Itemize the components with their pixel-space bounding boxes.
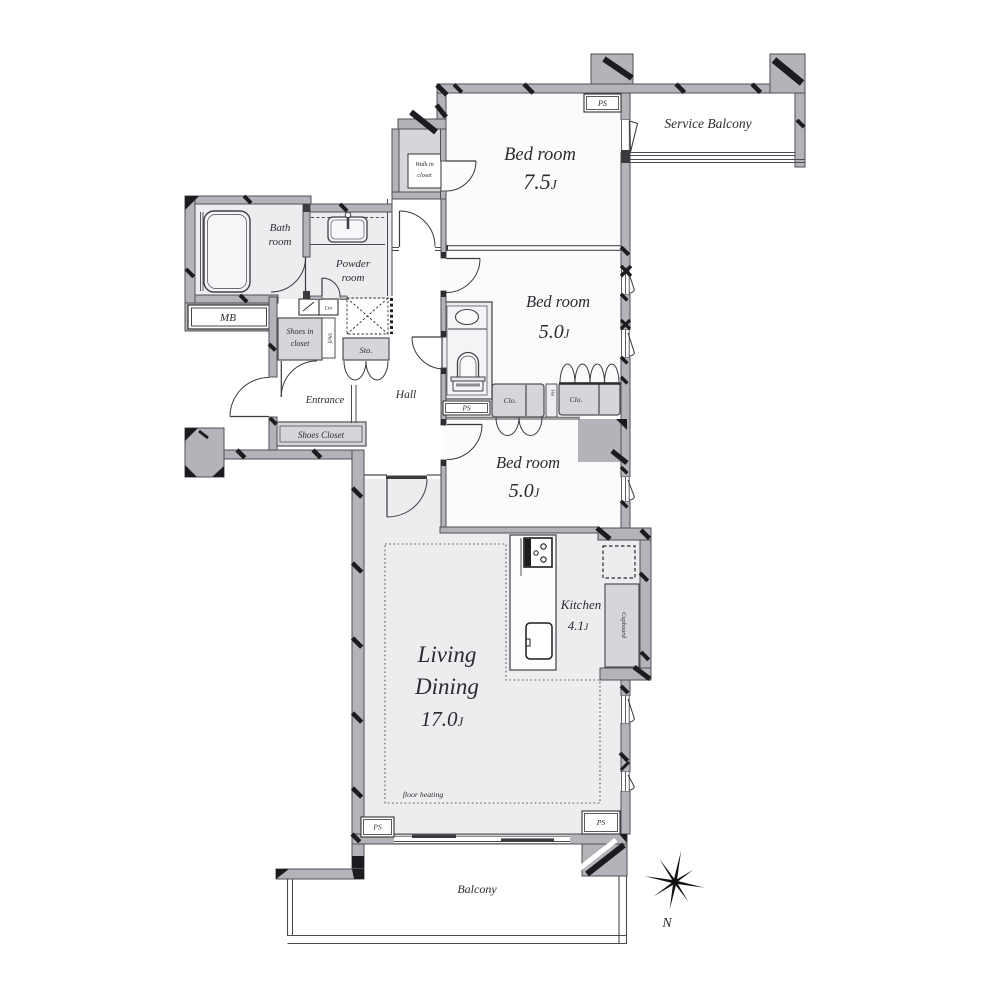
svg-text:room: room xyxy=(269,236,292,248)
svg-text:Shoes Closet: Shoes Closet xyxy=(298,430,345,440)
svg-text:room: room xyxy=(342,272,365,284)
svg-text:Entrance: Entrance xyxy=(305,395,345,406)
svg-text:Walk in: Walk in xyxy=(415,161,434,168)
svg-text:PS: PS xyxy=(597,99,607,108)
svg-text:Kitchen: Kitchen xyxy=(560,597,601,612)
svg-text:Bath: Bath xyxy=(270,222,291,234)
svg-text:Lin: Lin xyxy=(324,306,332,312)
svg-text:Clo.: Clo. xyxy=(504,396,517,405)
svg-text:Bed room: Bed room xyxy=(504,145,576,165)
svg-text:Shelf: Shelf xyxy=(327,333,334,345)
svg-text:N: N xyxy=(661,916,672,931)
svg-text:Hall: Hall xyxy=(395,389,416,401)
svg-text:closet: closet xyxy=(291,339,310,348)
svg-text:Shoes in: Shoes in xyxy=(287,327,314,336)
svg-text:PS: PS xyxy=(596,818,606,827)
svg-text:Clo.: Clo. xyxy=(570,395,583,404)
svg-text:Bed room: Bed room xyxy=(496,453,560,472)
svg-text:Cupboard: Cupboard xyxy=(620,612,627,638)
svg-text:Dining: Dining xyxy=(414,674,479,699)
svg-text:MB: MB xyxy=(219,312,236,324)
svg-text:Powder: Powder xyxy=(335,258,371,270)
svg-text:PS: PS xyxy=(372,823,382,832)
svg-text:Sto.: Sto. xyxy=(360,345,373,355)
svg-text:Hat: Hat xyxy=(551,389,556,397)
svg-text:Service Balcony: Service Balcony xyxy=(664,116,751,131)
svg-text:floor heating: floor heating xyxy=(403,790,444,799)
svg-text:Living: Living xyxy=(417,642,477,667)
svg-text:Bed room: Bed room xyxy=(526,292,590,311)
svg-text:closet: closet xyxy=(417,172,432,179)
svg-text:Balcony: Balcony xyxy=(457,882,497,896)
svg-text:PS: PS xyxy=(461,404,470,413)
